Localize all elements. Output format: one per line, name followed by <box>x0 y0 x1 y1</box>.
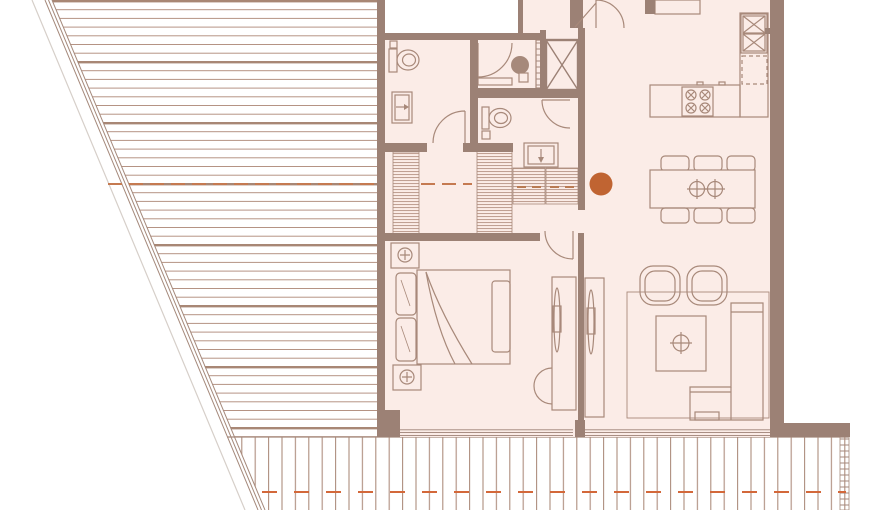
floor-plan-canvas <box>0 0 880 510</box>
wall-hall-east <box>578 98 585 210</box>
wall-east <box>770 0 784 425</box>
wardrobe-middle <box>477 148 512 240</box>
wall-glazing-pier <box>575 420 585 437</box>
wall-southwest-corner <box>377 410 400 437</box>
wall-under-void <box>385 33 546 40</box>
wall-bathroom-south-left <box>385 143 427 152</box>
wall-bedroom-north <box>385 233 540 241</box>
wall-bathroom-south-right <box>463 143 513 152</box>
laundry-box <box>519 73 528 82</box>
wall-laundry-south <box>470 88 540 98</box>
wall-shaft-south <box>546 90 585 98</box>
wall-kitchen-pier <box>645 0 655 14</box>
terrace-drain-strip <box>840 437 849 510</box>
washing-machine <box>511 56 529 74</box>
floor-plan-drawing <box>0 0 880 510</box>
wall-void-east <box>518 0 523 33</box>
wall-entrance-pier <box>570 0 583 28</box>
wall-shaft-west <box>540 30 546 98</box>
unit-location-dot[interactable] <box>590 173 613 196</box>
deck-boards-hatch <box>234 437 848 510</box>
roof-void-cutout <box>385 0 518 33</box>
wall-shaft-east <box>578 28 585 90</box>
wall-bedroom-east <box>578 233 584 433</box>
wall-west <box>377 0 385 437</box>
wardrobe-left <box>393 152 419 236</box>
terrace-deck-area <box>227 437 849 510</box>
wall-southeast-band <box>770 423 850 437</box>
